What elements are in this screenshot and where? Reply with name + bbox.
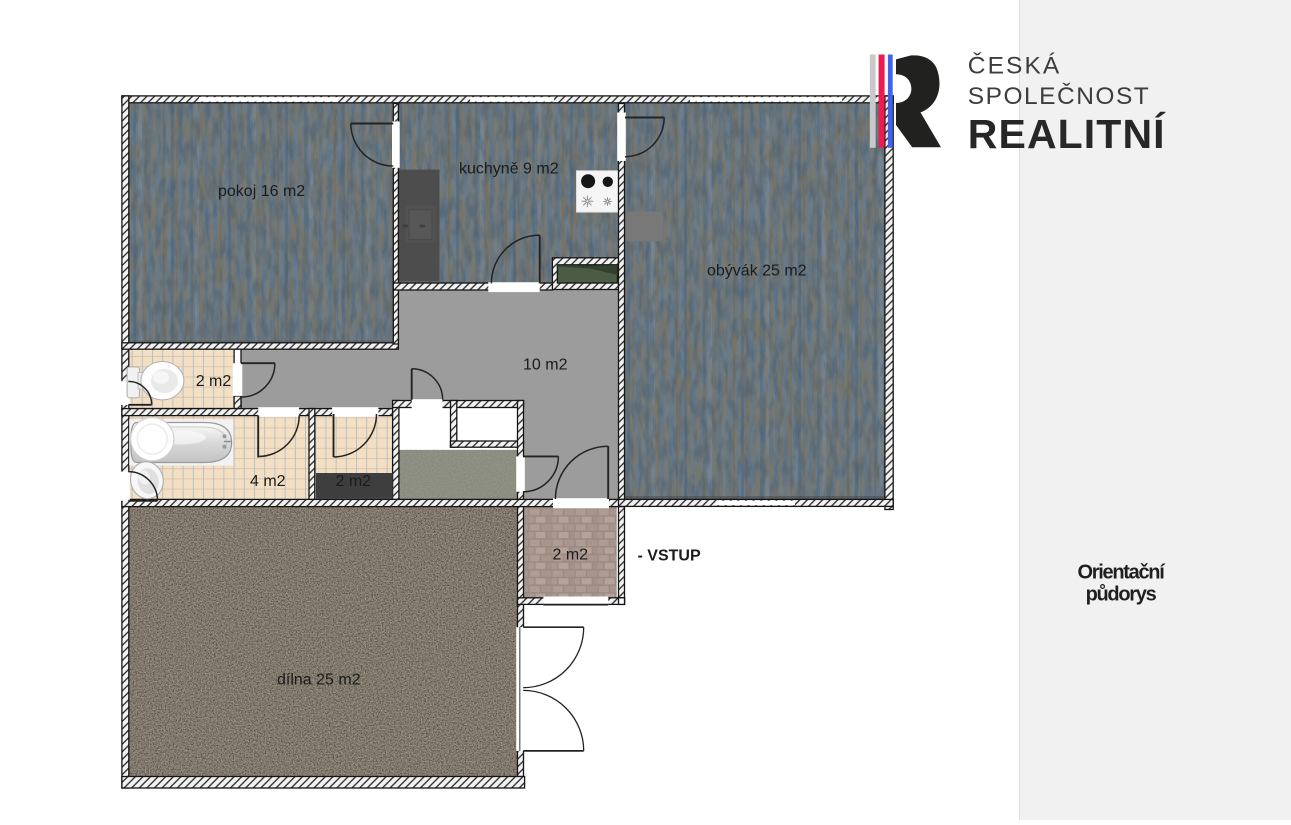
svg-text:10 m2: 10 m2 <box>523 357 568 374</box>
svg-text:REALITNÍ: REALITNÍ <box>968 111 1166 157</box>
svg-text:Orientační: Orientační <box>1078 562 1167 584</box>
svg-text:2 m2: 2 m2 <box>553 547 589 564</box>
svg-text:2 m2: 2 m2 <box>196 373 232 390</box>
svg-text:- VSTUP: - VSTUP <box>638 548 701 565</box>
svg-text:4 m2: 4 m2 <box>250 473 286 490</box>
svg-text:dílna 25 m2: dílna 25 m2 <box>277 672 361 689</box>
svg-text:pokoj 16 m2: pokoj 16 m2 <box>218 183 305 200</box>
svg-text:2 m2: 2 m2 <box>336 473 372 490</box>
svg-text:obývák 25 m2: obývák 25 m2 <box>707 263 807 280</box>
svg-text:SPOLEČNOST: SPOLEČNOST <box>968 82 1150 110</box>
svg-text:kuchyně 9 m2: kuchyně 9 m2 <box>459 161 559 178</box>
svg-text:půdorys: půdorys <box>1086 584 1157 606</box>
svg-text:ČESKÁ: ČESKÁ <box>968 52 1062 80</box>
